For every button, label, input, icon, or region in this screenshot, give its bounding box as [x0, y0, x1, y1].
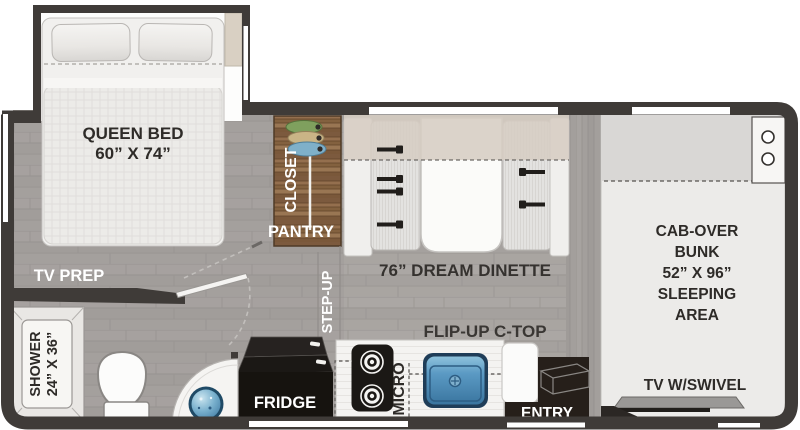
svg-text:AREA: AREA [675, 307, 719, 324]
svg-text:CLOSET: CLOSET [283, 147, 300, 212]
svg-text:STEP-UP: STEP-UP [320, 270, 336, 333]
svg-text:SHOWER: SHOWER [28, 331, 44, 397]
svg-text:60” X 74”: 60” X 74” [95, 144, 171, 163]
svg-text:CAB-OVER: CAB-OVER [656, 223, 739, 240]
svg-text:TV W/SWIVEL: TV W/SWIVEL [644, 377, 746, 394]
svg-text:FLIP-UP C-TOP: FLIP-UP C-TOP [423, 322, 546, 341]
svg-text:76” DREAM DINETTE: 76” DREAM DINETTE [379, 261, 551, 280]
svg-text:TV PREP: TV PREP [34, 267, 105, 285]
svg-text:FRIDGE: FRIDGE [254, 394, 316, 412]
svg-text:BUNK: BUNK [675, 244, 721, 261]
svg-text:QUEEN BED: QUEEN BED [82, 124, 183, 143]
svg-text:52” X 96”: 52” X 96” [663, 265, 732, 282]
svg-text:24” X 36”: 24” X 36” [45, 332, 61, 397]
svg-text:PANTRY: PANTRY [268, 223, 334, 241]
svg-text:MICRO: MICRO [391, 362, 408, 415]
svg-text:SLEEPING: SLEEPING [658, 286, 736, 303]
